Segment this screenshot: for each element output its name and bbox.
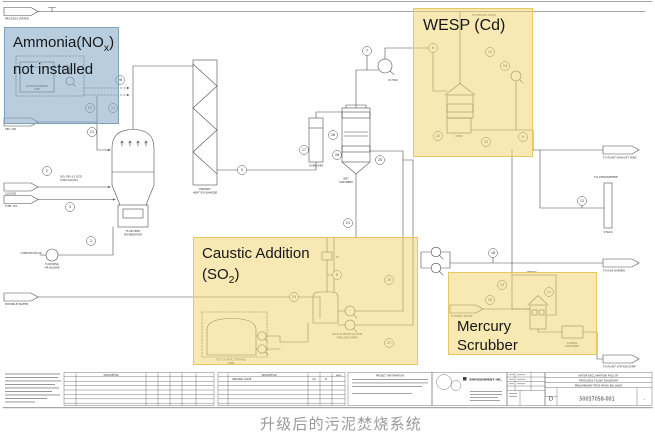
highlight-ammonia-box: Ammonia(NOx) not installed — [4, 27, 119, 124]
svg-text:17: 17 — [302, 148, 306, 152]
ammonia-text-line2: not installed — [13, 61, 93, 78]
rev-table-description-header: DESCRIPTION — [262, 374, 277, 377]
caustic-text-line1: Caustic Addition — [202, 245, 310, 262]
connector-potable-water: POTABLE WATER — [4, 293, 38, 306]
quencher: QUENCHER — [309, 118, 323, 168]
wet-scrubber-column: WET SCRUBBER — [339, 105, 370, 184]
svg-text:2: 2 — [46, 169, 48, 173]
connector-to-atmosphere: TO ATMOSPHERE — [593, 175, 618, 179]
connector-fuel-oil: FUEL OIL — [4, 196, 38, 209]
connector-label: PROCESS WATER — [5, 17, 29, 21]
company-logo-icon — [463, 377, 467, 381]
tag-circle: 12 — [578, 197, 587, 206]
general-notes-lines — [5, 374, 61, 403]
connector-to-kiln-burner: TO KILN BURNER — [603, 259, 639, 273]
connector-label: TO KILN BURNER — [603, 269, 625, 273]
connector-sludge: SLUDGE — [4, 183, 38, 196]
incinerator-label2: INCINERATOR — [124, 232, 142, 236]
primary-heat-exchanger: PRIMARY HEAT EXCHANGER — [193, 60, 218, 194]
fluidizing-air-blower: COMBUSTION AIR FLUIDIZING AIR BLOWER — [20, 249, 59, 269]
mercury-text-line2: Scrubber — [457, 337, 518, 354]
revision-number: - — [644, 397, 646, 402]
stack-label: STACK — [604, 230, 613, 234]
svg-text:26: 26 — [335, 153, 339, 157]
connector-label: TO PLANT STATION SUMP — [603, 365, 636, 369]
svg-text:1: 1 — [90, 239, 92, 243]
svg-text:18: 18 — [491, 251, 495, 255]
tag-circle: 26 — [333, 151, 342, 160]
original-issue-row: ORIGINAL ISSUE — [232, 378, 252, 381]
highlight-ammonia-label: Ammonia(NOx) not installed — [5, 28, 118, 80]
tag-circle: 16 — [329, 131, 338, 140]
combustion-air-label: COMBUSTION AIR — [20, 252, 41, 255]
tag-circle: 3 — [66, 203, 75, 212]
svg-text:12: 12 — [580, 199, 584, 203]
hx-label2: HEAT EXCHANGER — [193, 190, 218, 194]
svg-text:25: 25 — [378, 158, 382, 162]
approval-grid — [507, 373, 545, 406]
sludge-note-line2: 5,800 GAL/DAY — [60, 179, 78, 182]
scrubber-label2: SCRUBBER — [339, 180, 353, 184]
tag-circle: 17 — [300, 146, 309, 155]
pfd-slide: FLUID BED INCINERATOR PRIMARY HEAT EXCHA… — [0, 0, 655, 448]
tag-circle: 1 — [87, 237, 96, 246]
highlight-caustic-label: Caustic Addition (SO2) — [194, 238, 417, 291]
engineer-stamp-icon — [437, 375, 452, 390]
connector-label: POTABLE WATER — [5, 302, 28, 306]
engineer-stamp-icon — [451, 381, 461, 391]
stamp-and-logo-block: ENVIRONMENT INC. — [432, 373, 507, 406]
wesp-text: WESP (Cd) — [423, 17, 505, 34]
highlight-wesp-label: WESP (Cd) — [414, 9, 532, 36]
sheet-size: D — [549, 397, 553, 403]
id-fan-label: ID FAN — [388, 78, 397, 82]
company-name: ENVIRONMENT INC. — [470, 378, 503, 382]
ammonia-text-close: ) — [109, 34, 114, 51]
project-info-header: PROJECT INFORMATION — [376, 374, 404, 377]
connector-label: FUEL OIL — [5, 204, 18, 208]
drawing-number: 50037058-001 — [579, 397, 614, 403]
connector-label: SEC AIR — [5, 127, 16, 131]
ammonia-text: Ammonia(NO — [13, 34, 104, 51]
highlight-mercury-box: Mercury Scrubber — [448, 272, 597, 355]
tag-circle: 25 — [376, 156, 385, 165]
exhaust-stack: STACK — [604, 183, 613, 234]
drwn-initials: AG — [312, 378, 315, 381]
fluid-bed-incinerator: FLUID BED INCINERATOR — [112, 130, 154, 237]
connector-process-water: PROCESS WATER — [4, 8, 38, 21]
svg-text:16: 16 — [331, 133, 335, 137]
kiln-feed-pumps — [431, 247, 443, 275]
date-header: DATE — [336, 374, 342, 377]
quencher-label: QUENCHER — [309, 164, 323, 168]
connector-label: TO PLANT EXHAUST FANS — [603, 156, 637, 160]
rev-table-description-header: DESCRIPTION — [104, 374, 119, 377]
svg-text:5: 5 — [241, 168, 243, 172]
connector-to-plant-sump: TO PLANT STATION SUMP — [603, 355, 639, 369]
scrubber-label: WET — [343, 177, 349, 181]
tag-circle: 21 — [88, 128, 97, 137]
project-information-block: PROJECT INFORMATION — [348, 373, 432, 406]
title-block: DESCRIPTION DESCRIPTION DATE ORIGINAL IS… — [3, 373, 653, 408]
revision-table-b: DESCRIPTION DATE ORIGINAL ISSUE AG LT — [218, 373, 345, 406]
blower-label2: AIR BLOWER — [44, 266, 59, 269]
tag-circle: 5 — [238, 166, 247, 175]
sludge-note: 26% DRY 6.5 DT/D 5,800 GAL/DAY — [60, 176, 82, 182]
highlight-wesp-box: WESP (Cd) — [413, 8, 533, 157]
connector-to-plant-exhaust: TO PLANT EXHAUST FANS — [603, 146, 639, 160]
tag-circle: 7 — [363, 47, 372, 56]
svg-text:3: 3 — [69, 205, 71, 209]
svg-text:21: 21 — [346, 221, 350, 225]
id-fan: ID FAN — [378, 59, 398, 82]
revision-table-a: DESCRIPTION — [64, 373, 214, 406]
svg-text:7: 7 — [366, 49, 368, 53]
caustic-text-close: ) — [235, 266, 240, 283]
tag-circle: 2 — [43, 167, 52, 176]
tag-circle: 21 — [344, 219, 353, 228]
highlight-mercury-label: Mercury Scrubber — [449, 273, 596, 355]
chkd-initials: LT — [325, 378, 328, 381]
tag-circle: 18 — [489, 249, 498, 258]
svg-text:21: 21 — [90, 130, 94, 134]
figure-caption: 升级后的污泥焚烧系统 — [260, 413, 422, 434]
drawing-subtitle: PRELIMINARY PFDS MASS BALANCE — [575, 384, 623, 388]
highlight-caustic-box: Caustic Addition (SO2) — [193, 237, 418, 365]
drawing-title: PROCESS FLOW DIAGRAM — [579, 379, 618, 383]
caustic-text-line2: (SO — [202, 266, 229, 283]
facility-name: WATER RECLAMATION FACILITY — [578, 373, 619, 377]
drawing-title-block: WATER RECLAMATION FACILITY PROCESS FLOW … — [545, 373, 652, 406]
mercury-text-line1: Mercury — [457, 318, 511, 335]
connector-label: SLUDGE — [5, 192, 17, 196]
